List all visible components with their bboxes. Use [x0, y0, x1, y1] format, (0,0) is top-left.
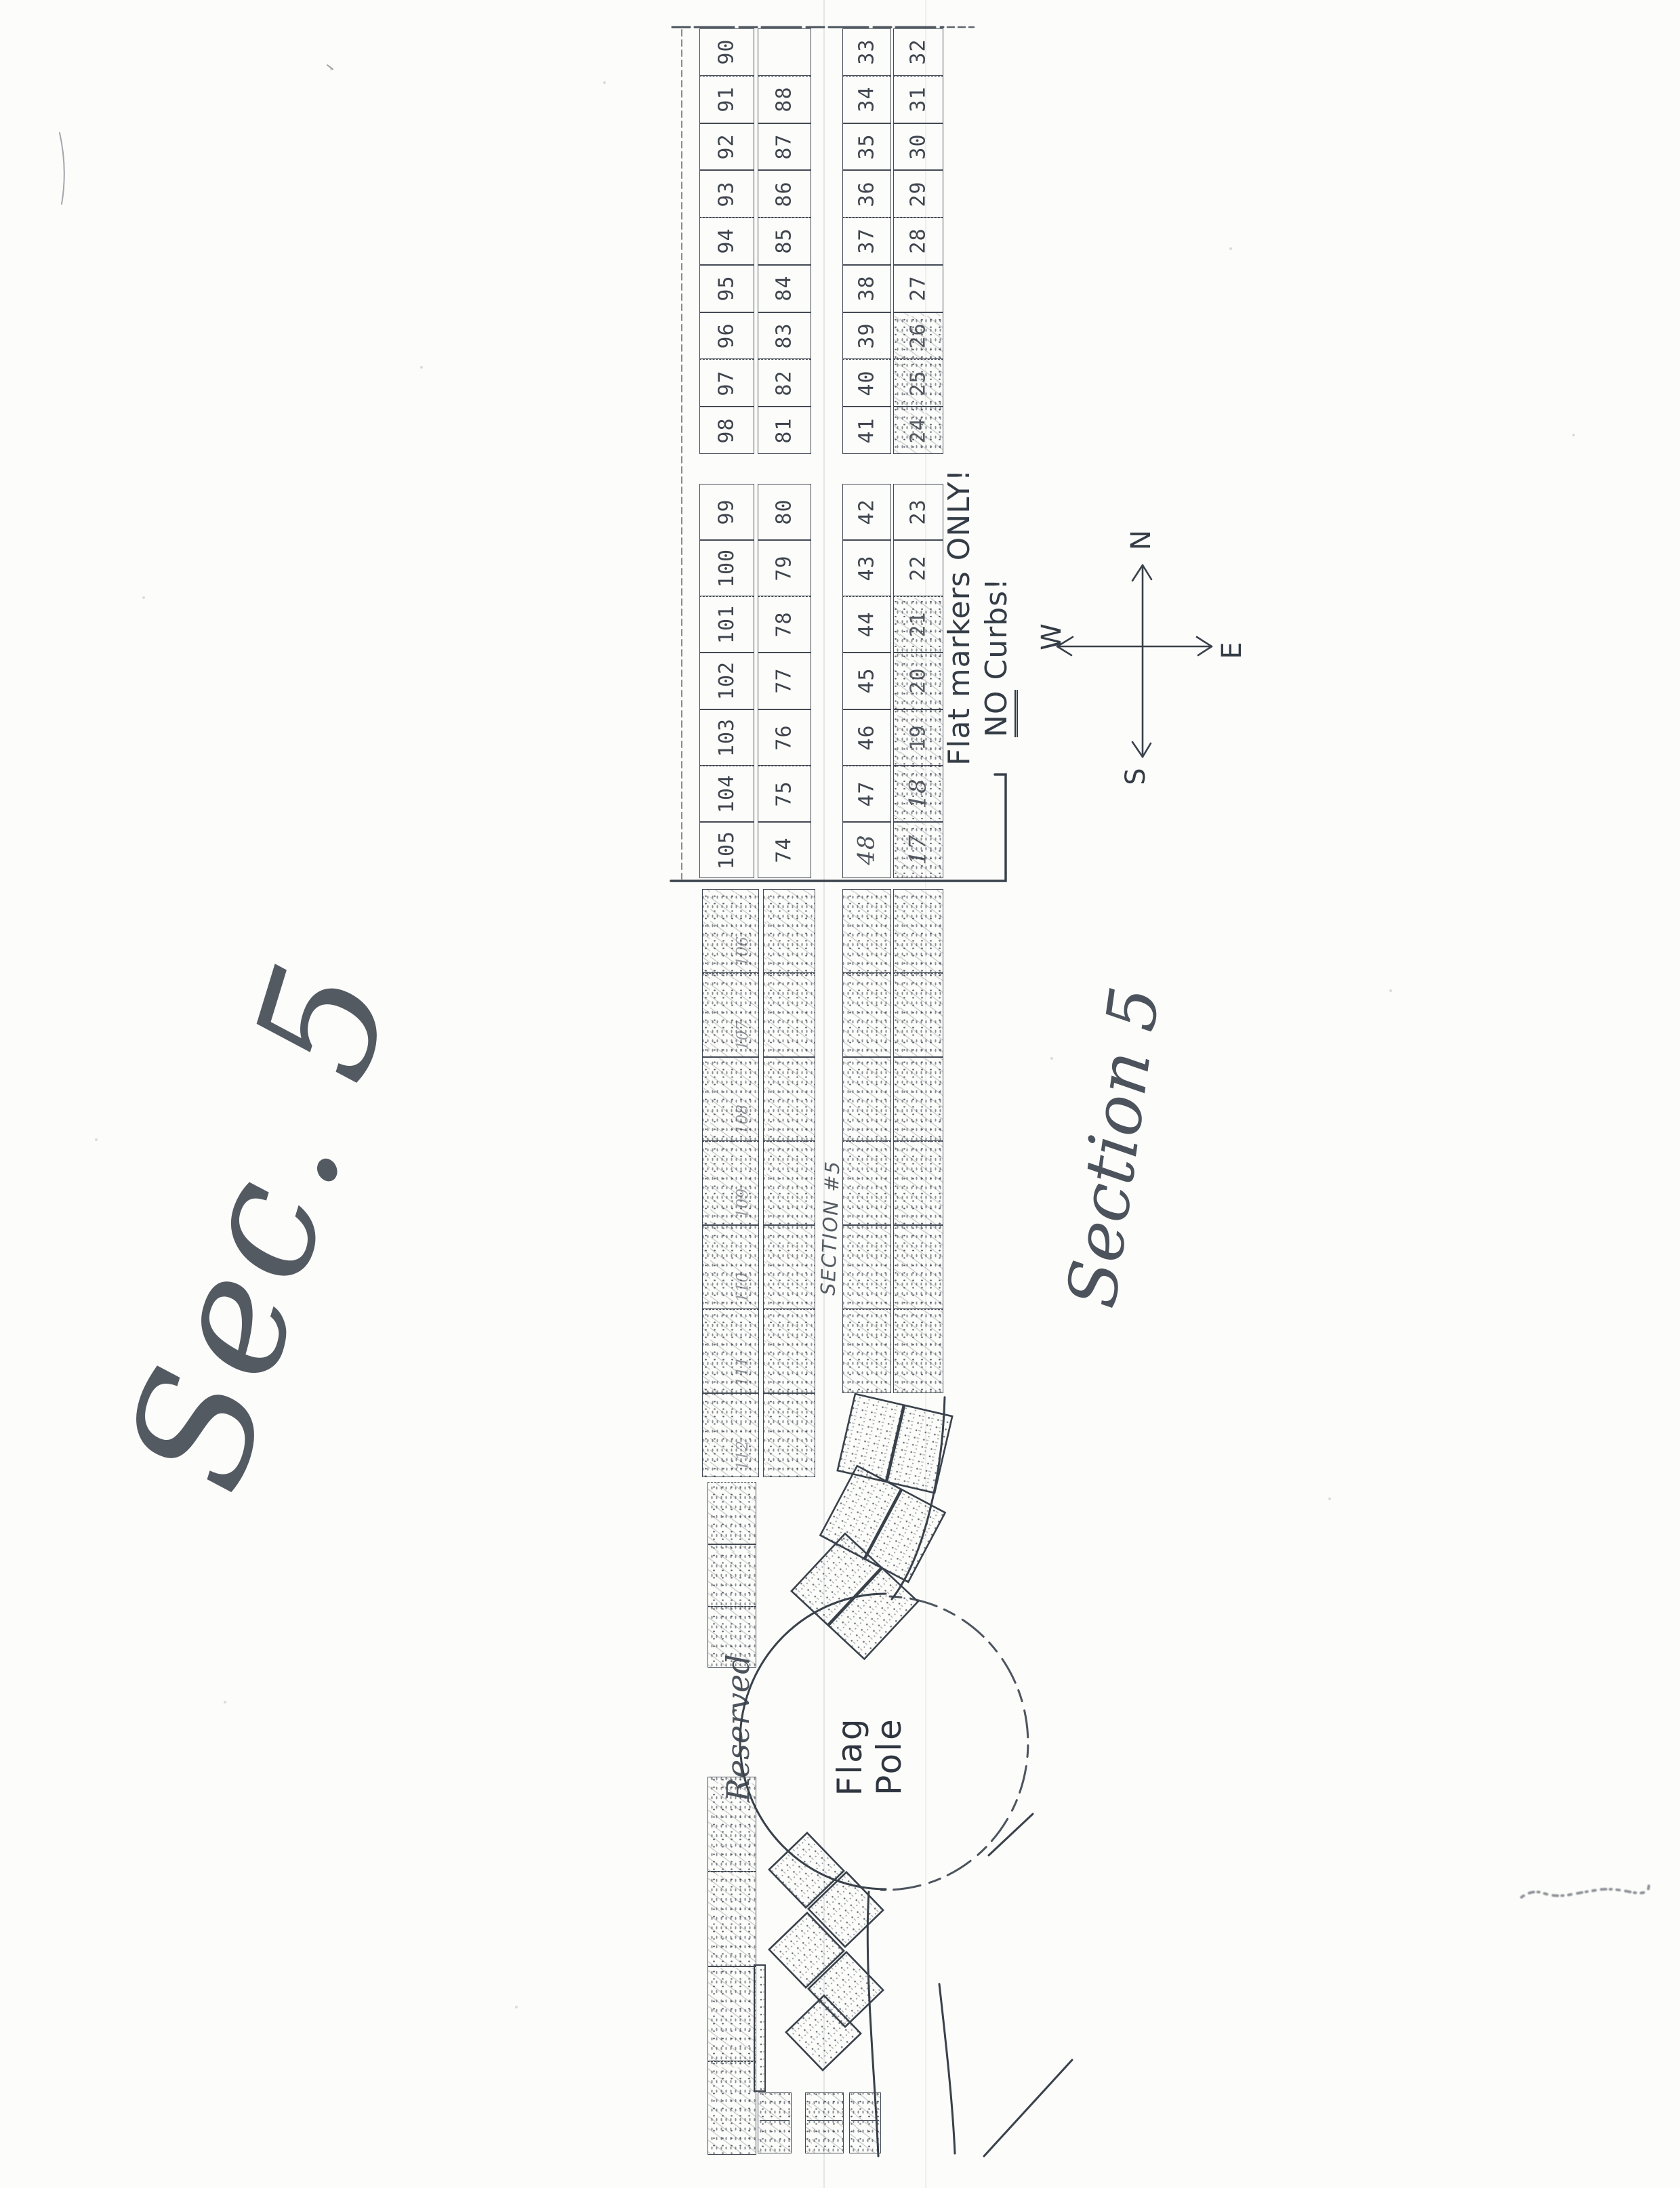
plot-number: 88	[773, 87, 796, 112]
plot-number: 45	[855, 668, 879, 694]
plot-number: 47	[855, 781, 879, 806]
plot-cell-104: 104	[699, 766, 754, 822]
plot-number: 91	[715, 87, 739, 112]
road-edge-right	[939, 1984, 955, 2153]
plot-cell-37: 37	[842, 218, 891, 265]
faint-plot-number: 106	[734, 936, 752, 966]
plot-cell-30: 30	[893, 123, 943, 171]
plot-cell-105: 105	[699, 822, 754, 878]
plot-cell	[763, 973, 815, 1057]
plot-number: 43	[855, 556, 879, 581]
plot-cell-47: 47	[842, 766, 891, 822]
scanned-cemetery-map-page: Sec. 5 Section 5 SECTION #5 Flat markers…	[0, 0, 1680, 2188]
plot-cell-91: 91	[699, 76, 754, 123]
plot-cell	[708, 1966, 756, 2061]
plot-number: 46	[855, 724, 879, 750]
plot-number: 101	[715, 605, 739, 644]
plot-cell-86: 86	[758, 170, 811, 218]
compass-arrows	[1057, 565, 1212, 757]
scan-speck	[1050, 1057, 1053, 1060]
plot-cell: 111	[702, 1309, 759, 1393]
note-line-2: NO Curbs!	[978, 305, 1015, 766]
scan-speck	[603, 81, 606, 84]
plot-cell	[763, 1225, 815, 1309]
plot-cell-26: 26	[893, 312, 943, 360]
plot-number: 94	[715, 228, 739, 254]
plot-number: 95	[715, 276, 739, 302]
plot-number: 76	[773, 724, 796, 750]
curved-plot-cells	[792, 1394, 952, 1659]
scan-speck	[330, 68, 333, 70]
plot-cell-77: 77	[758, 653, 811, 709]
plot-cell-34: 34	[842, 76, 891, 123]
plot-cell-79: 79	[758, 540, 811, 596]
plot-cell-28: 28	[893, 218, 943, 265]
plot-cell-83: 83	[758, 312, 811, 360]
plot-cell	[763, 889, 815, 973]
plot-cell-40: 40	[842, 359, 891, 407]
plot-number: 75	[773, 781, 796, 806]
plot-number: 33	[855, 39, 879, 65]
scan-artifact-left-edge	[60, 133, 64, 204]
plot-cell-82: 82	[758, 359, 811, 407]
plot-cell	[893, 1141, 943, 1225]
plot-cell-35: 35	[842, 123, 891, 171]
note-no-word: NO	[979, 690, 1018, 737]
plot-number: 31	[907, 87, 930, 112]
road-edge-short	[989, 1814, 1033, 1855]
scan-speck	[224, 1701, 226, 1704]
scan-speck	[420, 366, 423, 369]
plot-cell	[763, 1393, 815, 1477]
scan-speck	[1389, 989, 1392, 992]
plot-cell	[708, 2061, 756, 2155]
plot-cell-22: 22	[893, 540, 943, 596]
plot-cell	[842, 1141, 891, 1225]
plot-cell: 106	[702, 889, 759, 973]
plot-number: 82	[773, 370, 796, 396]
plot-number: 18	[905, 779, 932, 809]
plot-cell-21: 21	[893, 596, 943, 653]
plot-number: 37	[855, 228, 879, 254]
reserved-label: Reserved	[720, 1626, 760, 1830]
plot-cell	[842, 1225, 891, 1309]
flag-pole-line-1: Flag	[831, 1661, 870, 1851]
plot-number: 105	[715, 831, 739, 869]
plot-number: 96	[715, 323, 739, 348]
plot-number: 48	[853, 835, 880, 865]
plot-number: 24	[907, 417, 930, 443]
plot-cell: 110	[702, 1225, 759, 1309]
plot-number: 40	[855, 370, 879, 396]
plot-number: 92	[715, 133, 739, 159]
plot-number: 99	[715, 499, 739, 525]
plot-cell	[708, 1872, 756, 1966]
faint-plot-number: 112	[734, 1441, 752, 1470]
plot-cell-96: 96	[699, 312, 754, 360]
plot-cell-93: 93	[699, 170, 754, 218]
flag-pole-label: Flag Pole	[831, 1661, 912, 1851]
plot-cell-76: 76	[758, 709, 811, 766]
plot-cell-103: 103	[699, 709, 754, 766]
plot-number: 87	[773, 133, 796, 159]
plot-number: 103	[715, 718, 739, 757]
plot-number: 26	[907, 323, 930, 348]
plot-cell-27: 27	[893, 265, 943, 312]
plot-cell	[842, 973, 891, 1057]
plot-cell	[763, 1309, 815, 1393]
faint-plot-number: 108	[734, 1105, 752, 1134]
plot-cell	[849, 2092, 881, 2153]
plot-number: 79	[773, 556, 796, 581]
plot-cell-42: 42	[842, 484, 891, 540]
plot-cell-78: 78	[758, 596, 811, 653]
plot-number: 81	[773, 417, 796, 443]
plot-cell	[805, 2092, 844, 2153]
plot-cell-32: 32	[893, 28, 943, 76]
plot-number: 22	[907, 556, 930, 581]
plot-cell	[708, 1482, 756, 1544]
plot-cell-95: 95	[699, 265, 754, 312]
plot-cell-94: 94	[699, 218, 754, 265]
plot-cell-39: 39	[842, 312, 891, 360]
plot-number: 77	[773, 668, 796, 694]
plot-cell	[708, 1544, 756, 1607]
plot-cell	[893, 889, 943, 973]
plot-number: 32	[907, 39, 930, 65]
plot-cell-99: 99	[699, 484, 754, 540]
plot-cell-80: 80	[758, 484, 811, 540]
plot-number: 100	[715, 549, 739, 587]
plot-number: 85	[773, 228, 796, 254]
plot-cell-44: 44	[842, 596, 891, 653]
plot-cell	[842, 889, 891, 973]
plot-number: 30	[907, 133, 930, 159]
plot-cell-85: 85	[758, 218, 811, 265]
plot-cell-24: 24	[893, 407, 943, 454]
compass-west-label: W	[1037, 622, 1067, 652]
scan-speck	[95, 1138, 98, 1141]
plot-cell: 107	[702, 973, 759, 1057]
plot-cell-101: 101	[699, 596, 754, 653]
plot-cell	[763, 1141, 815, 1225]
plot-cell-81: 81	[758, 407, 811, 454]
note-line-1: Flat markers ONLY!	[941, 305, 978, 766]
plot-number: 35	[855, 133, 879, 159]
plot-number: 34	[855, 87, 879, 112]
plot-cell-90: 90	[699, 28, 754, 76]
plot-cell-33: 33	[842, 28, 891, 76]
plot-cell-74: 74	[758, 822, 811, 878]
faint-plot-number: 109	[734, 1189, 752, 1218]
plot-cell	[893, 973, 943, 1057]
scan-speck	[142, 596, 145, 599]
plot-number: 98	[715, 417, 739, 443]
plot-cell	[893, 1057, 943, 1141]
plot-cell-75: 75	[758, 766, 811, 822]
compass-south-label: S	[1121, 762, 1151, 791]
plot-number: 21	[907, 612, 930, 638]
plot-number: 44	[855, 612, 879, 638]
plot-number: 27	[907, 276, 930, 302]
flat-markers-note: Flat markers ONLY! NO Curbs!	[941, 305, 1022, 766]
diagonal-plot-cells-southwest	[769, 1833, 883, 2070]
plot-cell-98: 98	[699, 407, 754, 454]
plot-cell-45: 45	[842, 653, 891, 709]
plot-number: 17	[905, 835, 932, 865]
plot-cell-84: 84	[758, 265, 811, 312]
faint-pencil-smudge	[1521, 1886, 1649, 1897]
faint-plot-number: 111	[734, 1357, 752, 1386]
plot-cell	[758, 28, 811, 76]
plot-cell-36: 36	[842, 170, 891, 218]
plot-cell-38: 38	[842, 265, 891, 312]
plot-cell-46: 46	[842, 709, 891, 766]
plot-cell	[842, 1309, 891, 1393]
plot-number: 28	[907, 228, 930, 254]
scan-speck	[1328, 1498, 1331, 1500]
plot-cell-29: 29	[893, 170, 943, 218]
plot-number: 38	[855, 276, 879, 302]
plot-cell: 109	[702, 1141, 759, 1225]
plot-number: 83	[773, 323, 796, 348]
plot-number: 36	[855, 181, 879, 207]
plot-number: 42	[855, 499, 879, 525]
plot-number: 29	[907, 181, 930, 207]
plot-number: 86	[773, 181, 796, 207]
compass-north-label: N	[1126, 525, 1156, 555]
scan-speck	[515, 2006, 518, 2008]
plot-cell-23: 23	[893, 484, 943, 540]
plot-number: 97	[715, 370, 739, 396]
plot-number: 93	[715, 181, 739, 207]
plot-number: 78	[773, 612, 796, 638]
plot-cell-43: 43	[842, 540, 891, 596]
plot-number: 19	[907, 724, 930, 750]
road-edge-diagonal	[984, 2060, 1072, 2156]
plot-cell-100: 100	[699, 540, 754, 596]
scan-speck	[1572, 434, 1575, 436]
note-curbs-word: Curbs!	[979, 577, 1014, 690]
plot-cell-31: 31	[893, 76, 943, 123]
plot-cell	[758, 2092, 792, 2153]
plot-number: 20	[907, 668, 930, 694]
plot-cell-17: 17	[893, 822, 943, 878]
plot-cell	[763, 1057, 815, 1141]
plot-cell-25: 25	[893, 359, 943, 407]
plot-cell	[893, 1309, 943, 1393]
plot-cell-87: 87	[758, 123, 811, 171]
plot-cell-88: 88	[758, 76, 811, 123]
faint-plot-number: 110	[734, 1273, 752, 1302]
plot-cell-20: 20	[893, 653, 943, 709]
plot-number: 74	[773, 837, 796, 863]
plot-number: 104	[715, 775, 739, 813]
plot-cell-97: 97	[699, 359, 754, 407]
plot-number: 23	[907, 499, 930, 525]
scan-speck	[1229, 247, 1232, 250]
plot-number: 25	[907, 370, 930, 396]
plot-cell	[842, 1057, 891, 1141]
plot-number: 41	[855, 417, 879, 443]
plot-cell-48: 48	[842, 822, 891, 878]
plot-number: 80	[773, 499, 796, 525]
plot-cell	[893, 1225, 943, 1309]
plot-cell-102: 102	[699, 653, 754, 709]
plot-number: 90	[715, 39, 739, 65]
plot-cell: 112	[702, 1393, 759, 1477]
plot-cell-41: 41	[842, 407, 891, 454]
plot-number: 39	[855, 323, 879, 348]
plot-cell-18: 18	[893, 766, 943, 822]
plot-cell-92: 92	[699, 123, 754, 171]
plot-cell: 108	[702, 1057, 759, 1141]
flag-pole-line-2: Pole	[870, 1661, 909, 1851]
faint-plot-number: 107	[734, 1020, 752, 1050]
plot-number: 102	[715, 661, 739, 700]
compass-east-label: E	[1217, 636, 1247, 665]
plot-cell-19: 19	[893, 709, 943, 766]
plot-number: 84	[773, 276, 796, 302]
